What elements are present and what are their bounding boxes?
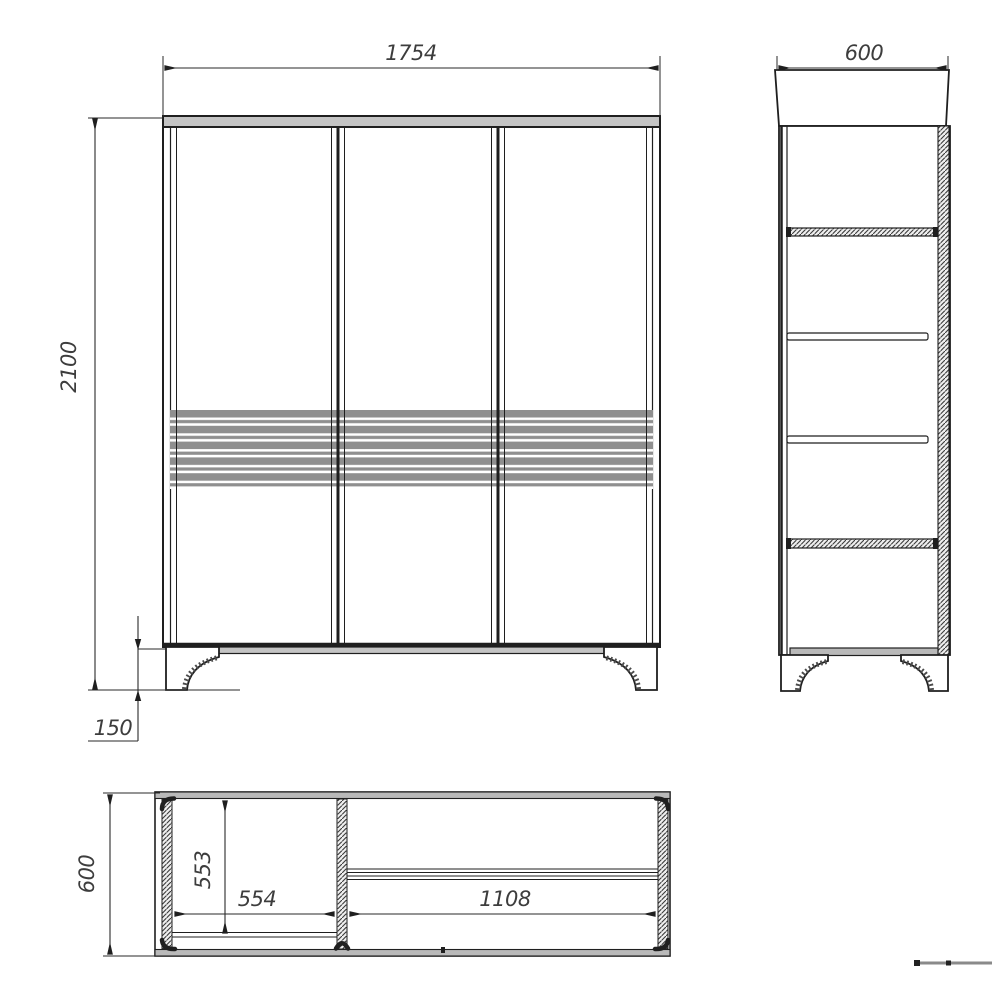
top-front-edge-band [155, 950, 670, 957]
top-back-edge-band [155, 792, 670, 799]
dim-side-depth-label: 600 [845, 41, 884, 65]
dim-top-depth-label: 600 [75, 855, 99, 894]
top-outline [155, 792, 670, 956]
side-door-section-strip [938, 126, 949, 655]
side-top-panel [775, 70, 949, 126]
side-carcass-outline [779, 126, 950, 655]
dim-top-553-label: 553 [191, 851, 215, 890]
front-slat-band [170, 410, 653, 489]
top-view [155, 792, 670, 956]
side-shelf-1 [787, 333, 928, 340]
dim-front-height: 2100 [57, 118, 240, 690]
drawing-sheet: 1754 2100 150 [0, 0, 992, 992]
front-top-panel [163, 116, 660, 127]
side-view [775, 70, 950, 691]
front-plinth [196, 647, 630, 654]
dim-top-1108-label: 1108 [479, 887, 531, 911]
side-leg-right [901, 655, 948, 691]
dim-leg-arrow-down [135, 639, 141, 650]
dim-leg-height: 150 [88, 616, 166, 741]
top-left-rail [172, 933, 337, 938]
side-fixed-shelf-1 [786, 227, 938, 237]
dim-leg-height-label: 150 [94, 716, 133, 740]
side-fixed-shelf-2 [786, 538, 938, 549]
dim-top-depth: 600 [75, 793, 160, 956]
edge-fragment [914, 960, 992, 966]
dim-side-depth: 600 [777, 41, 948, 70]
dim-leg-arrow-up [135, 690, 141, 701]
top-right-rail-2 [347, 876, 658, 880]
top-left-panel-section [162, 799, 172, 949]
dim-front-width: 1754 [163, 41, 660, 116]
front-leg-right [604, 647, 657, 690]
side-shelf-2 [787, 436, 928, 443]
top-right-panel-section [658, 799, 668, 949]
top-right-rail-1 [347, 869, 658, 873]
dim-front-height-label: 2100 [57, 341, 81, 393]
front-leg-left [166, 647, 219, 690]
top-divider-panel-section [337, 799, 347, 949]
technical-drawing: 1754 2100 150 [0, 0, 992, 992]
dim-front-width-label: 1754 [385, 41, 436, 65]
front-carcass-outline [163, 116, 660, 647]
side-leg-left [781, 655, 828, 691]
front-view [163, 116, 660, 690]
front-door-edges [177, 127, 647, 643]
dim-top-554-label: 554 [238, 887, 277, 911]
